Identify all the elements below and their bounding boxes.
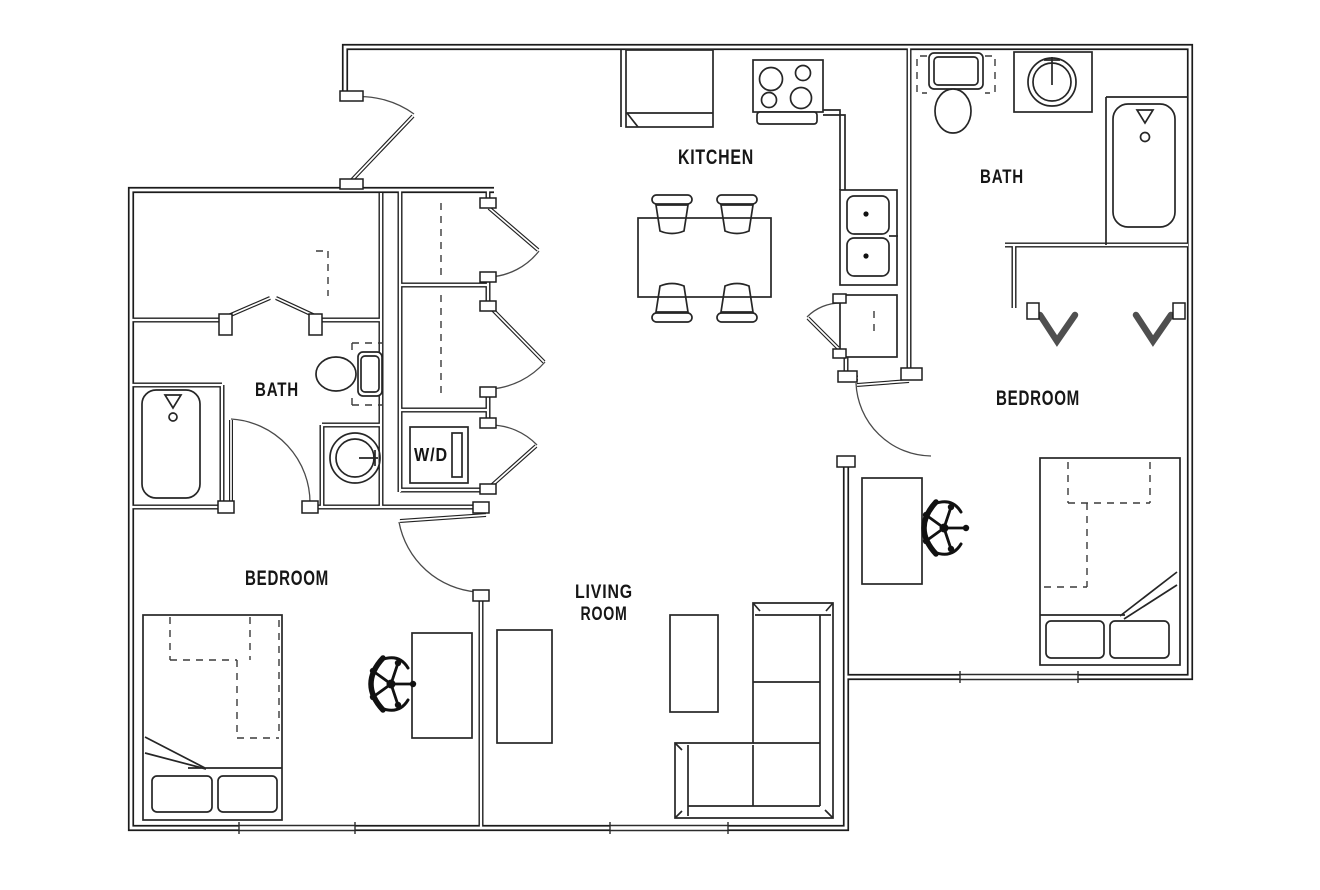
pillow	[1110, 621, 1169, 658]
sink-icon-upper	[1014, 52, 1092, 112]
room-label-living-line1: LIVING	[575, 582, 633, 603]
pantry-closet	[840, 295, 897, 357]
pillow	[152, 776, 212, 812]
dining-table	[638, 218, 771, 297]
kitchen-counter-fridge	[621, 50, 713, 127]
window-bedroom-lower	[239, 822, 355, 834]
door-swing-arcs	[231, 97, 931, 592]
bathtub-icon-upper	[1106, 97, 1188, 245]
stove-icon	[753, 60, 823, 124]
office-chair-icon	[370, 658, 416, 710]
room-label-bath-lower: BATH	[255, 380, 299, 401]
office-chair-icon	[923, 502, 969, 554]
toilet-icon-upper	[917, 53, 995, 133]
bathtub-icon-lower	[142, 390, 200, 498]
bed-lower	[143, 615, 282, 820]
dining-stool	[652, 284, 692, 323]
floor-plan-drawing: KITCHEN BATH BEDROOM BATH BEDROOM LIVING…	[0, 0, 1320, 890]
room-label-bath-upper: BATH	[980, 167, 1024, 188]
floor-plan-page: KITCHEN BATH BEDROOM BATH BEDROOM LIVING…	[0, 0, 1320, 890]
dining-stool	[652, 195, 692, 234]
sink-icon-lower	[330, 433, 380, 483]
bifold-closet-doors	[1040, 315, 1171, 341]
tv-stand	[497, 630, 552, 743]
desk-upper	[862, 478, 922, 584]
room-label-bedroom-upper: BEDROOM	[996, 387, 1080, 410]
dining-stool	[717, 284, 757, 323]
desk-lower	[412, 633, 472, 738]
room-label-living-line2: ROOM	[581, 604, 628, 625]
kitchen-sink-icon	[840, 190, 898, 285]
room-label-kitchen: KITCHEN	[678, 146, 754, 169]
walls	[131, 47, 1190, 828]
room-label-laundry: W/D	[414, 445, 448, 465]
bed-upper	[1040, 458, 1180, 665]
pillow	[1046, 621, 1104, 658]
dining-table-and-stools	[638, 195, 771, 322]
window-living-room	[610, 822, 728, 834]
kitchen-counter-right	[823, 110, 845, 190]
coffee-table	[670, 615, 718, 712]
window-bedroom-upper	[960, 671, 1078, 683]
room-label-bedroom-lower: BEDROOM	[245, 567, 329, 590]
sectional-sofa	[675, 603, 833, 818]
toilet-icon-lower	[316, 343, 383, 405]
dining-stool	[717, 195, 757, 234]
pillow	[218, 776, 277, 812]
